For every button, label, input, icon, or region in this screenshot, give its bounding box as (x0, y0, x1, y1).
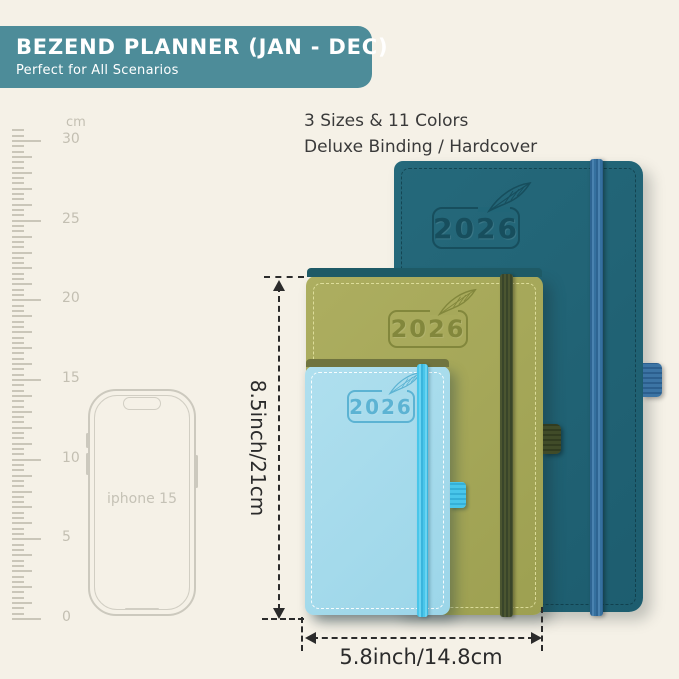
width-extension-left (301, 617, 303, 651)
arrow-left-icon (305, 632, 316, 644)
planner-small: 2026 (305, 366, 450, 615)
ruler: cm 30 25 20 15 10 5 0 (12, 0, 92, 679)
ruler-label-10: 10 (62, 450, 80, 466)
feather-icon (484, 181, 534, 213)
feather-icon (435, 288, 479, 316)
width-dimension-label: 5.8inch/14.8cm (339, 645, 502, 669)
planner-medium-emboss: 2026 (388, 310, 468, 348)
feature-text: 3 Sizes & 11 Colors Deluxe Binding / Har… (304, 108, 537, 160)
arrow-down-icon (273, 608, 285, 619)
planner-large-pen-loop (643, 363, 662, 397)
height-dimension-label: 8.5inch/21cm (246, 380, 270, 516)
ruler-label-15: 15 (62, 370, 80, 386)
phone-power-button (195, 455, 198, 488)
ruler-label-0: 0 (62, 609, 71, 625)
planner-small-elastic-band (417, 364, 428, 617)
arrow-right-icon (531, 632, 542, 644)
ruler-label-5: 5 (62, 529, 71, 545)
phone-outline: iphone 15 (88, 389, 196, 616)
planner-small-emboss: 2026 (347, 390, 415, 423)
phone-volume-button-2 (86, 453, 89, 475)
width-extension-right (541, 607, 543, 651)
phone-dynamic-island (123, 397, 161, 410)
ruler-label-30: 30 (62, 131, 80, 147)
arrow-up-icon (273, 280, 285, 291)
feature-binding: Deluxe Binding / Hardcover (304, 134, 537, 160)
product-image: BEZEND PLANNER (JAN - DEC) Perfect for A… (0, 0, 679, 679)
planner-small-year: 2026 (349, 395, 413, 419)
ruler-label-25: 25 (62, 211, 80, 227)
planner-medium-elastic-band (500, 274, 513, 617)
planner-medium-pen-loop (543, 424, 561, 454)
ruler-unit-label: cm (66, 115, 86, 130)
phone-port (125, 608, 159, 611)
planner-large-year: 2026 (433, 212, 519, 245)
planner-large-elastic-band (590, 159, 603, 616)
planner-large-emboss: 2026 (432, 207, 520, 249)
height-dimension-line (278, 286, 280, 610)
planner-small-pen-loop (450, 482, 466, 508)
feature-sizes-colors: 3 Sizes & 11 Colors (304, 108, 537, 134)
planner-medium-year: 2026 (391, 315, 466, 343)
ruler-label-20: 20 (62, 290, 80, 306)
phone-volume-button-1 (86, 433, 89, 448)
width-dimension-line (312, 637, 534, 639)
phone-label: iphone 15 (90, 491, 194, 507)
height-extension-top (264, 276, 304, 278)
